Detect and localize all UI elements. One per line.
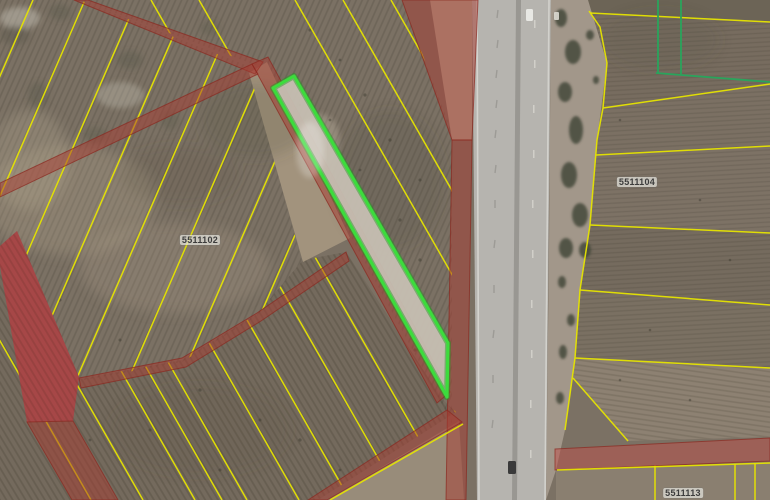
parcel-label-5511102: 5511102	[180, 235, 220, 245]
parcel-label-5511113: 5511113	[663, 488, 703, 498]
roadside-object	[554, 12, 559, 20]
vehicle-white	[526, 9, 533, 21]
map-canvas[interactable]: 5511102 5511104 5511113	[0, 0, 770, 500]
parcel-label-5511104: 5511104	[617, 177, 657, 187]
satellite-cadastral-layer	[0, 0, 770, 500]
vehicle-dark	[508, 461, 516, 474]
